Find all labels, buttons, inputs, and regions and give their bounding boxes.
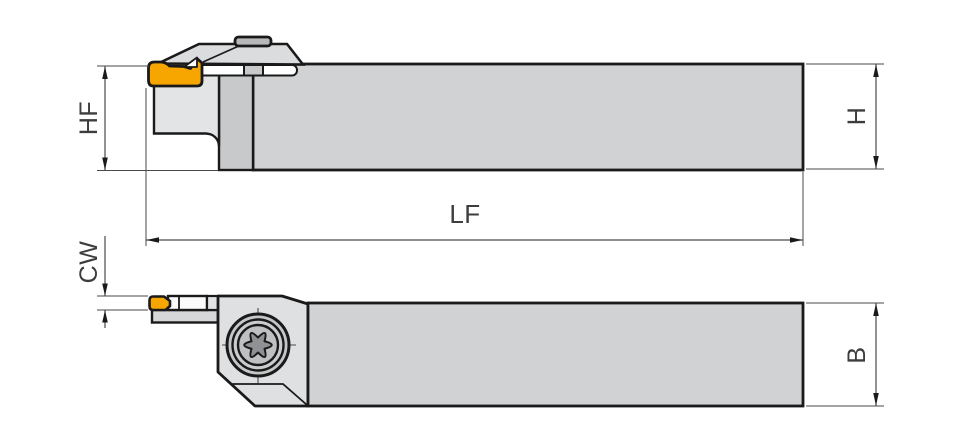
h-label: H xyxy=(843,107,871,126)
lf-arrow-right-icon xyxy=(790,237,803,243)
technical-drawing-page: HF H LF xyxy=(0,0,960,446)
hf-label: HF xyxy=(75,101,103,135)
side-shank-body xyxy=(253,64,803,170)
cw-arrow-up-icon xyxy=(102,310,108,322)
b-arrow-up-icon xyxy=(873,303,879,316)
cw-label: CW xyxy=(75,241,103,284)
b-label: B xyxy=(843,346,871,363)
side-head-mid-block xyxy=(219,75,253,170)
dimension-b: B xyxy=(806,303,884,406)
hf-arrow-up-icon xyxy=(102,66,108,79)
h-arrow-down-icon xyxy=(873,156,879,169)
side-clamp-slot-tab xyxy=(244,65,263,76)
dimension-cw: CW xyxy=(75,236,148,328)
plan-view: CW B xyxy=(75,236,884,406)
plan-shank-body xyxy=(308,303,803,406)
side-clamp-screw-knob xyxy=(235,37,271,46)
side-view: HF H LF xyxy=(75,37,884,246)
lf-arrow-left-icon xyxy=(146,237,159,243)
dimension-h: H xyxy=(806,64,884,169)
hf-arrow-down-icon xyxy=(102,158,108,171)
b-arrow-down-icon xyxy=(873,393,879,406)
side-clamp xyxy=(158,44,303,65)
plan-blade-strip xyxy=(168,296,207,310)
lf-label: LF xyxy=(449,199,480,229)
tool-holder-drawing: HF H LF xyxy=(0,0,960,446)
plan-cutting-insert xyxy=(150,297,171,311)
plan-blade-support xyxy=(152,310,218,323)
cw-arrow-down-icon xyxy=(102,284,108,296)
h-arrow-up-icon xyxy=(873,64,879,77)
